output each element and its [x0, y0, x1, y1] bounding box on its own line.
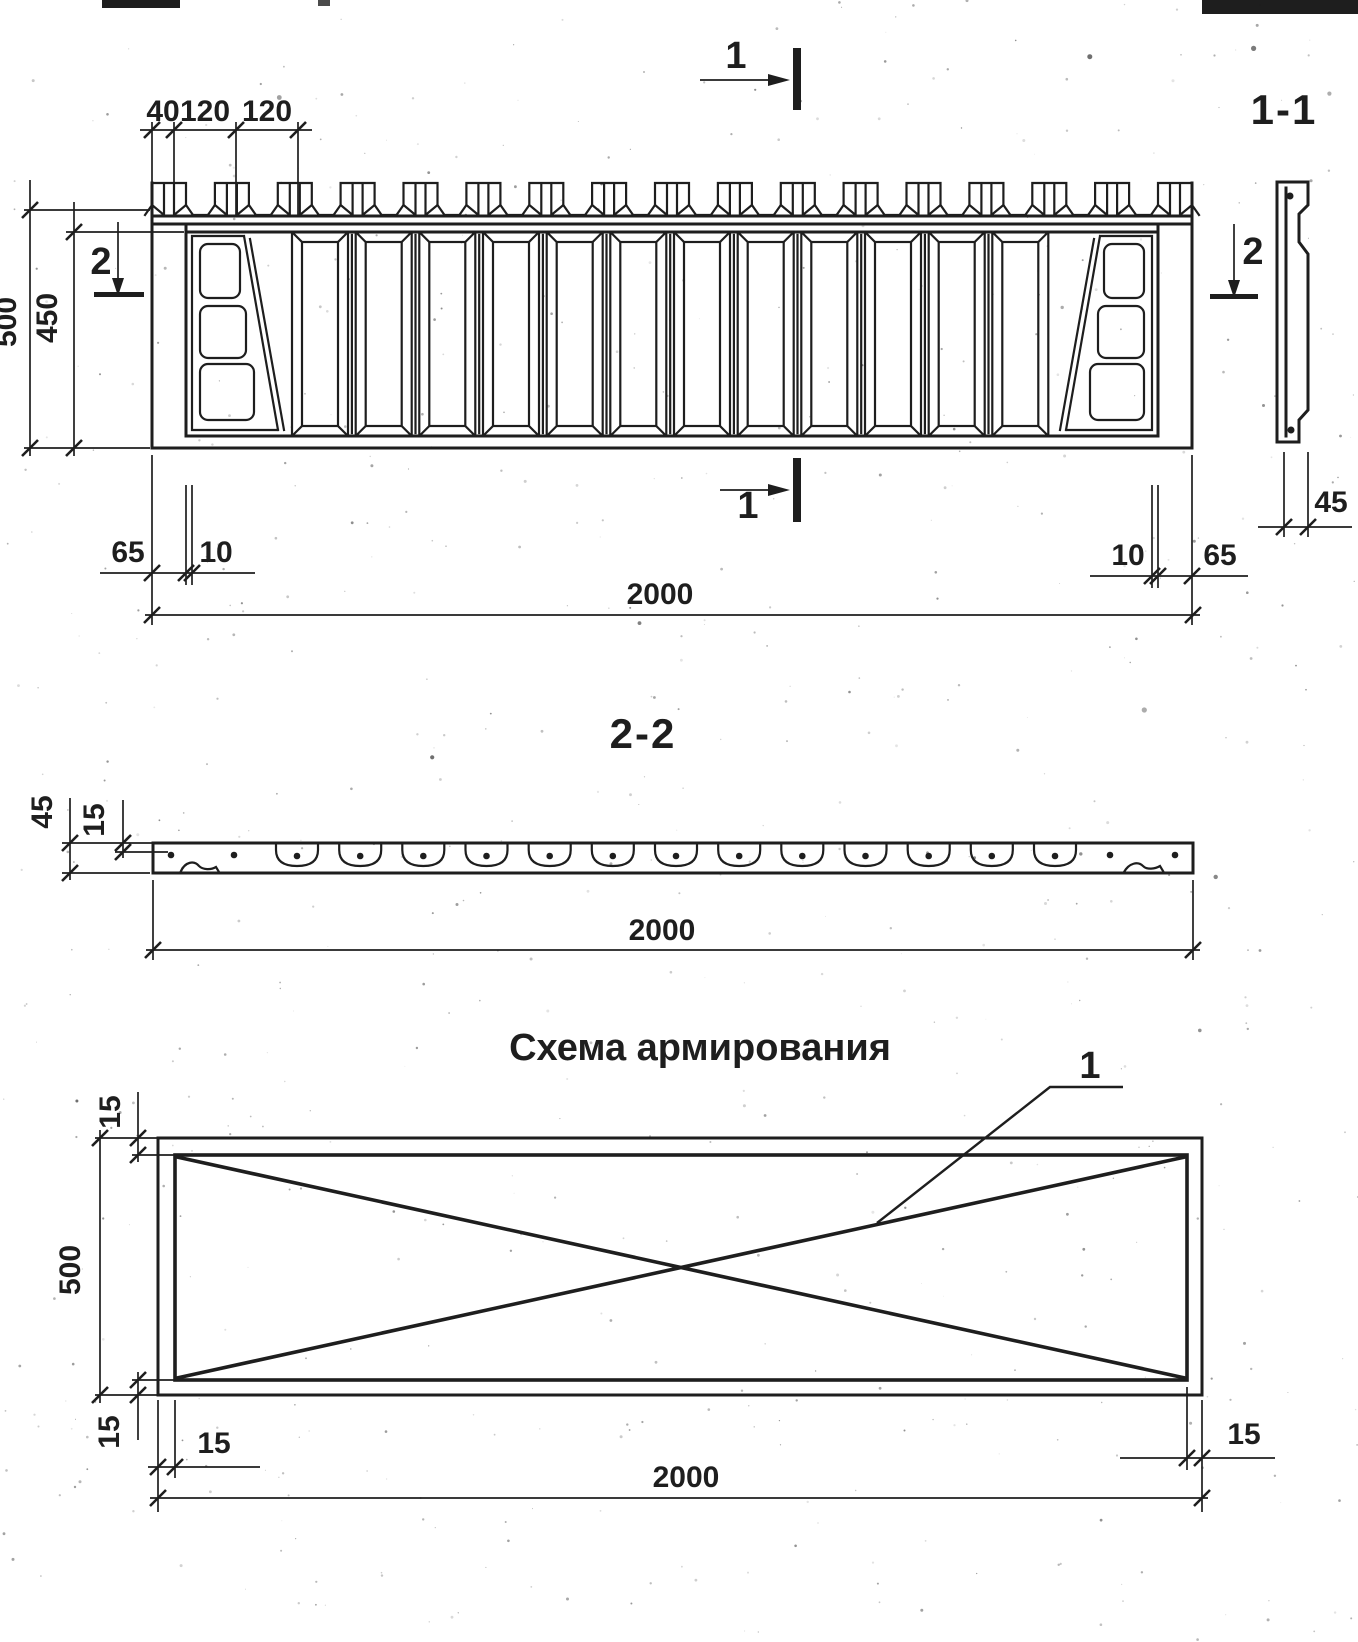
speckle — [1222, 371, 1225, 374]
speckle — [445, 545, 447, 547]
speckle — [106, 760, 108, 762]
speckle — [530, 958, 533, 961]
speckle — [682, 787, 684, 789]
speckle — [1066, 1213, 1069, 1216]
speckle — [198, 439, 200, 441]
speckle — [1101, 1402, 1102, 1403]
speckle — [33, 1414, 35, 1416]
speckle — [623, 1237, 625, 1239]
speckle — [1190, 891, 1192, 893]
speckle — [754, 89, 756, 91]
speckle — [462, 235, 463, 236]
speckle — [1310, 179, 1313, 182]
speckle — [219, 380, 220, 381]
speckle — [228, 1125, 229, 1126]
speckle — [1176, 9, 1178, 11]
speckle — [293, 1011, 294, 1012]
speckle — [267, 1052, 268, 1053]
speckle — [153, 707, 155, 709]
speckle — [305, 1357, 307, 1359]
speckle — [650, 1582, 652, 1584]
speckle — [963, 360, 965, 362]
speckle — [79, 1480, 82, 1483]
speckle — [666, 1240, 668, 1242]
speckle — [786, 740, 788, 742]
speckle — [207, 638, 209, 640]
rebar-dot — [294, 853, 301, 860]
speckle — [156, 664, 158, 666]
speckle — [294, 1404, 296, 1406]
speckle — [680, 659, 683, 662]
speckle — [250, 1116, 252, 1118]
speckle — [848, 691, 851, 694]
speckle — [238, 836, 240, 838]
speckle — [405, 1066, 406, 1067]
speckle — [703, 81, 705, 83]
speckle — [198, 1398, 200, 1400]
speckle — [1310, 1007, 1312, 1009]
speckle — [191, 1150, 193, 1152]
speckle — [58, 483, 60, 485]
speckle — [1320, 328, 1322, 330]
speckle — [1246, 741, 1249, 744]
speckle — [769, 606, 771, 608]
speckle — [1271, 456, 1273, 458]
speckle — [1275, 12, 1277, 14]
speckle — [1081, 1274, 1083, 1276]
speckle — [878, 117, 881, 120]
speckle — [79, 636, 80, 637]
speckle — [670, 971, 673, 974]
speckle — [67, 809, 68, 810]
speckle — [600, 1313, 602, 1315]
speckle — [1247, 1028, 1249, 1030]
speckle — [21, 869, 23, 871]
speckle — [40, 1575, 42, 1577]
speckle — [424, 1219, 427, 1222]
speckle — [1140, 238, 1142, 240]
speckle — [440, 293, 442, 295]
speckle — [341, 93, 344, 96]
speckle — [895, 16, 896, 17]
speckle — [1337, 477, 1338, 478]
speckle — [86, 1468, 88, 1470]
speckle — [331, 414, 332, 415]
speckle — [1350, 1617, 1352, 1619]
speckle — [920, 1609, 923, 1612]
speckle — [344, 591, 345, 592]
speckle — [503, 145, 504, 146]
callout-label-1: 1 — [1079, 1045, 1100, 1087]
speckle — [561, 322, 563, 324]
speckle — [14, 180, 16, 182]
speckle — [416, 733, 418, 735]
speckle — [238, 920, 241, 923]
speckle — [779, 1420, 780, 1421]
cut-bar-bottom — [793, 458, 801, 522]
speckle — [559, 1118, 560, 1119]
speckle — [505, 1521, 507, 1523]
speckle — [514, 1193, 515, 1194]
speckle — [885, 32, 886, 33]
speckle — [824, 472, 826, 474]
speckle — [1071, 1004, 1072, 1005]
speckle — [449, 846, 450, 847]
speckle — [743, 1104, 746, 1107]
speckle — [608, 608, 609, 609]
speckle — [736, 1216, 739, 1219]
speckle — [626, 1423, 628, 1425]
speckle — [283, 66, 285, 68]
speckle — [764, 1343, 766, 1345]
speckle — [301, 847, 303, 849]
speckle — [956, 1017, 958, 1019]
speckle — [1242, 518, 1244, 520]
speckle — [1338, 1499, 1341, 1502]
speckle — [641, 1421, 643, 1423]
speckle — [422, 983, 425, 986]
speckle — [1303, 779, 1304, 780]
speckle — [1086, 958, 1088, 960]
speckle — [42, 774, 44, 776]
speckle — [976, 1573, 977, 1574]
speckle — [426, 679, 427, 680]
speckle — [550, 312, 553, 315]
speckle — [608, 156, 610, 158]
speckle — [895, 744, 898, 747]
speckle — [934, 1022, 935, 1023]
speckle — [206, 763, 208, 765]
speckle — [53, 1297, 56, 1300]
speckle — [1261, 1290, 1264, 1293]
speckle — [518, 100, 519, 101]
speckle — [823, 1096, 825, 1098]
speckle — [295, 485, 296, 486]
speckle — [877, 1583, 879, 1585]
speckle — [780, 1444, 781, 1445]
speckle — [104, 568, 106, 570]
speckle — [386, 1479, 387, 1480]
speckle — [741, 1390, 743, 1392]
speckle — [485, 1567, 486, 1568]
speckle — [98, 652, 100, 654]
speckle — [326, 310, 329, 313]
speckle — [1355, 1409, 1356, 1410]
speckle — [773, 498, 774, 499]
speckle — [3, 1532, 6, 1535]
speckle — [164, 267, 167, 270]
speckle — [71, 949, 73, 951]
reinforcement-title: Схема армирования — [509, 1027, 891, 1069]
speckle — [370, 464, 373, 467]
speckle — [860, 1006, 861, 1007]
speckle — [1035, 333, 1037, 335]
speckle — [513, 44, 514, 45]
speckle — [904, 1430, 906, 1432]
speckle — [276, 793, 278, 795]
dim-label-45-section22: 45 — [26, 795, 59, 828]
speckle — [541, 730, 544, 733]
speckle — [1031, 850, 1032, 851]
speckle — [262, 1126, 264, 1128]
speckle — [300, 840, 302, 842]
speckle — [229, 605, 231, 607]
speckle — [315, 1581, 317, 1583]
dim-label-10-left: 10 — [199, 536, 232, 569]
speckle — [1247, 949, 1249, 951]
speckle — [630, 1603, 632, 1605]
speckle — [1077, 1187, 1078, 1188]
speckle — [943, 1296, 944, 1297]
speckle — [600, 1510, 602, 1512]
speckle — [678, 892, 680, 894]
rebar-dot — [862, 853, 869, 860]
speckle — [441, 308, 443, 310]
speckle — [663, 391, 665, 393]
speckle — [879, 1387, 882, 1390]
speckle — [1246, 591, 1249, 594]
speckle — [597, 791, 599, 793]
speckle — [7, 543, 9, 545]
speckle — [758, 1631, 759, 1632]
speckle — [841, 7, 842, 8]
speckle — [190, 1276, 191, 1277]
speckle — [344, 425, 347, 428]
speckle — [1145, 550, 1147, 552]
scan-smudge — [318, 0, 330, 6]
speckle — [233, 167, 235, 169]
dim-label-65-right: 65 — [1203, 539, 1236, 572]
speckle — [1066, 78, 1069, 81]
speckle — [838, 1, 841, 4]
speckle — [944, 486, 947, 489]
speckle — [1327, 92, 1331, 96]
speckle — [546, 1010, 549, 1013]
speckle — [182, 1440, 184, 1442]
dim-label-40: 40 — [146, 95, 179, 128]
speckle — [18, 1365, 21, 1368]
speckle — [1207, 1396, 1209, 1398]
speckle — [1005, 1271, 1007, 1273]
speckle — [1082, 259, 1084, 261]
speckle — [655, 1361, 658, 1364]
speckle — [78, 366, 79, 367]
speckle — [1303, 745, 1304, 746]
rebar-dot — [736, 853, 743, 860]
speckle — [680, 635, 682, 637]
speckle — [890, 927, 892, 929]
speckle — [1328, 170, 1330, 172]
speckle — [381, 1572, 383, 1574]
speckle — [643, 71, 645, 73]
speckle — [757, 1254, 760, 1257]
rebar-dot — [1172, 852, 1179, 859]
speckle — [704, 977, 705, 978]
speckle — [947, 699, 949, 701]
speckle — [576, 484, 579, 487]
speckle — [308, 1430, 310, 1432]
speckle — [443, 734, 445, 736]
speckle — [485, 728, 486, 729]
speckle — [75, 1136, 77, 1138]
speckle — [1106, 821, 1109, 824]
speckle — [1058, 1564, 1060, 1566]
speckle — [172, 1145, 174, 1147]
speckle — [1161, 273, 1162, 274]
speckle — [858, 626, 859, 627]
speckle — [763, 825, 764, 826]
speckle — [432, 540, 434, 542]
speckle — [104, 780, 106, 782]
speckle — [280, 988, 281, 989]
speckle — [473, 1414, 474, 1415]
speckle — [1094, 800, 1096, 802]
speckle — [1007, 462, 1009, 464]
speckle — [1322, 914, 1323, 915]
speckle — [319, 305, 322, 308]
speckle — [1218, 107, 1219, 108]
speckle — [325, 1605, 326, 1606]
speckle — [638, 621, 642, 625]
speckle — [1118, 129, 1120, 131]
speckle — [1034, 1318, 1036, 1320]
speckle — [539, 1428, 540, 1429]
speckle — [1256, 647, 1258, 649]
dim-label-15-bottomside: 15 — [93, 1415, 126, 1448]
speckle — [562, 19, 564, 21]
speckle — [370, 456, 371, 457]
speckle — [651, 696, 653, 698]
speckle — [932, 77, 935, 80]
speckle — [312, 906, 314, 908]
speckle — [1027, 717, 1028, 718]
speckle — [620, 1435, 623, 1438]
speckle — [1256, 24, 1259, 27]
speckle — [871, 1211, 874, 1214]
speckle — [224, 1329, 226, 1331]
speckle — [1225, 1614, 1226, 1615]
speckle — [1017, 506, 1018, 507]
rebar-dot — [1287, 193, 1294, 200]
speckle — [1180, 54, 1182, 56]
speckle — [430, 755, 434, 759]
speckle — [904, 1207, 906, 1209]
speckle — [818, 1523, 819, 1524]
speckle — [180, 1215, 182, 1217]
speckle — [953, 1424, 955, 1426]
speckle — [1044, 773, 1045, 774]
speckle — [1299, 1200, 1301, 1202]
speckle — [971, 1355, 972, 1356]
speckle — [1203, 184, 1204, 185]
speckle — [99, 373, 101, 375]
speckle — [964, 1115, 966, 1117]
speckle — [542, 1241, 543, 1242]
speckle — [600, 537, 601, 538]
speckle — [654, 478, 655, 479]
rebar-dot — [1052, 853, 1059, 860]
speckle — [1308, 829, 1310, 831]
speckle — [242, 610, 244, 612]
speckle — [1245, 1022, 1247, 1024]
speckle — [1041, 513, 1043, 515]
speckle — [1243, 1342, 1246, 1345]
speckle — [300, 1187, 302, 1189]
speckle — [1124, 4, 1125, 5]
speckle — [704, 624, 705, 625]
speckle — [653, 696, 656, 699]
rebar-dot — [420, 853, 427, 860]
speckle — [291, 650, 293, 652]
speckle — [188, 1096, 190, 1098]
speckle — [743, 1090, 745, 1092]
speckle — [1353, 395, 1354, 396]
speckle — [681, 1566, 683, 1568]
speckle — [295, 1538, 296, 1539]
speckle — [510, 1250, 512, 1252]
speckle — [429, 1621, 430, 1622]
speckle — [807, 1501, 809, 1503]
speckle — [1239, 202, 1240, 203]
speckle — [912, 4, 915, 7]
speckle — [821, 973, 823, 975]
speckle — [433, 747, 434, 748]
speckle — [748, 1405, 749, 1406]
speckle — [1354, 581, 1355, 582]
speckle — [919, 289, 920, 290]
speckle — [616, 350, 619, 353]
rebar-dot — [1107, 852, 1114, 859]
speckle — [298, 1602, 300, 1604]
scan-smudge — [102, 0, 180, 8]
speckle — [385, 1430, 388, 1433]
section-2-2-title: 2-2 — [610, 710, 677, 757]
speckle — [464, 82, 465, 83]
speckle — [507, 1540, 510, 1543]
speckle — [408, 468, 409, 469]
speckle — [1250, 1368, 1252, 1370]
speckle — [935, 571, 938, 574]
speckle — [554, 1197, 556, 1199]
speckle — [768, 932, 771, 935]
dim-label-500: 500 — [0, 297, 23, 347]
speckle — [1063, 455, 1066, 458]
speckle — [1010, 1162, 1013, 1165]
speckle — [730, 133, 732, 135]
dim-label-15-left: 15 — [197, 1427, 230, 1460]
rebar-dot — [168, 852, 175, 859]
speckle — [1130, 662, 1131, 663]
speckle — [1095, 288, 1098, 291]
speckle — [1121, 1584, 1122, 1585]
speckle — [1281, 604, 1283, 606]
speckle — [794, 1545, 797, 1548]
speckle — [894, 697, 895, 698]
speckle — [816, 117, 819, 120]
speckle — [518, 546, 521, 549]
speckle — [102, 1217, 104, 1219]
speckle — [1214, 875, 1218, 879]
speckle — [1116, 1454, 1118, 1456]
speckle — [778, 307, 779, 308]
speckle — [108, 949, 109, 950]
speckle — [132, 383, 135, 386]
speckle — [936, 598, 938, 600]
speckle — [931, 520, 932, 521]
speckle — [159, 819, 161, 821]
speckle — [1160, 578, 1161, 579]
speckle — [866, 1151, 868, 1153]
